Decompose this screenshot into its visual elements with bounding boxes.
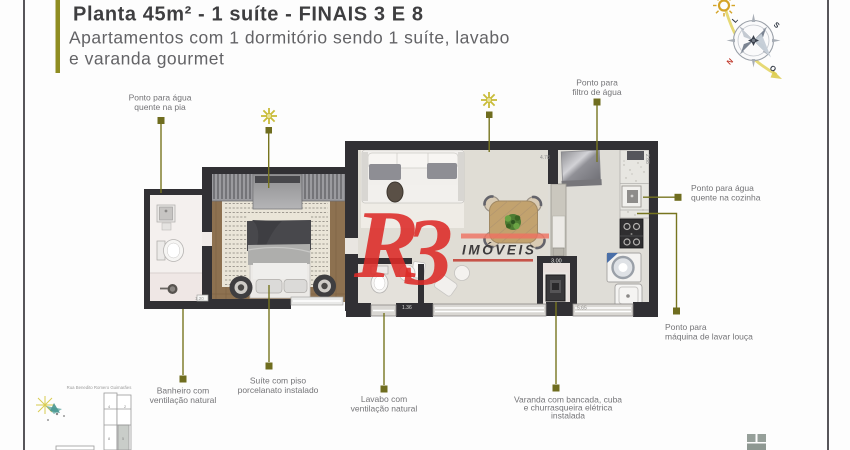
svg-text:quente na cozinha: quente na cozinha: [691, 193, 761, 203]
svg-text:filtro de água: filtro de água: [572, 87, 621, 97]
svg-text:instalada: instalada: [551, 411, 585, 421]
svg-text:4: 4: [108, 405, 110, 409]
svg-text:Ponto para água: Ponto para água: [691, 183, 754, 193]
svg-text:quente na pia: quente na pia: [134, 102, 186, 112]
svg-text:Suíte com piso: Suíte com piso: [250, 376, 306, 386]
svg-text:Ponto para: Ponto para: [665, 322, 707, 332]
svg-text:Banheiro com: Banheiro com: [157, 386, 209, 396]
svg-text:Lavabo com: Lavabo com: [361, 394, 407, 404]
svg-text:IMÓVEIS: IMÓVEIS: [462, 243, 536, 258]
svg-text:3: 3: [404, 198, 453, 305]
svg-text:Ponto para: Ponto para: [576, 78, 618, 88]
svg-text:Ponto para água: Ponto para água: [129, 93, 192, 103]
svg-text:2: 2: [124, 405, 126, 409]
svg-text:máquina de lavar louça: máquina de lavar louça: [665, 332, 753, 342]
svg-text:1.20: 1.20: [195, 296, 204, 301]
svg-text:1.36: 1.36: [402, 305, 412, 311]
svg-text:2.88: 2.88: [644, 154, 650, 164]
svg-text:8: 8: [108, 437, 110, 441]
svg-text:4.78: 4.78: [540, 155, 550, 161]
svg-text:5.65: 5.65: [577, 306, 587, 312]
svg-text:3.00: 3.00: [551, 259, 562, 265]
svg-text:ventilação natural: ventilação natural: [150, 395, 217, 405]
svg-text:Apartamentos com 1 dormitório: Apartamentos com 1 dormitório sendo 1 su…: [69, 28, 510, 48]
svg-text:ventilação natural: ventilação natural: [351, 404, 418, 414]
svg-text:Planta 45m² - 1 suíte - FINAIS: Planta 45m² - 1 suíte - FINAIS 3 E 8: [73, 4, 424, 26]
svg-text:e varanda gourmet: e varanda gourmet: [69, 49, 224, 69]
svg-text:porcelanato instalado: porcelanato instalado: [238, 385, 319, 395]
svg-text:5: 5: [122, 437, 124, 441]
svg-text:Rua Benedito Romero Guimarães: Rua Benedito Romero Guimarães: [67, 385, 132, 390]
